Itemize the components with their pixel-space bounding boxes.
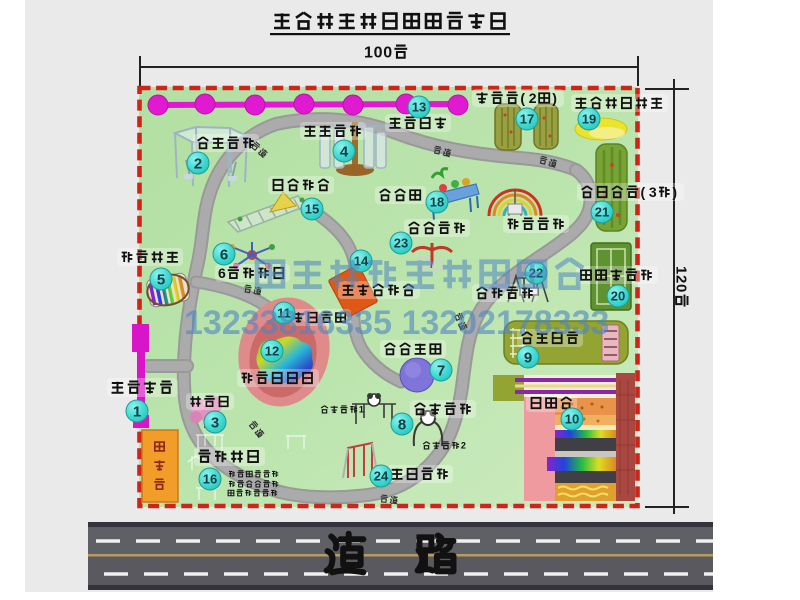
svg-text:7: 7 (437, 362, 445, 379)
svg-text:6: 6 (218, 265, 226, 281)
svg-text:): ) (552, 90, 557, 106)
svg-text:24: 24 (374, 469, 389, 484)
svg-text:(: ( (641, 184, 646, 200)
svg-text:3: 3 (211, 414, 219, 431)
svg-text:1: 1 (133, 403, 141, 420)
svg-text:13: 13 (412, 100, 426, 115)
svg-text:1: 1 (364, 44, 373, 61)
svg-text:2: 2 (194, 155, 202, 172)
svg-text:6: 6 (220, 246, 228, 263)
svg-text:8: 8 (398, 416, 406, 433)
svg-text:(: ( (520, 90, 525, 106)
svg-text:2: 2 (461, 441, 466, 451)
svg-text:3: 3 (649, 184, 657, 200)
svg-text:5: 5 (157, 271, 165, 288)
svg-text:17: 17 (520, 112, 534, 127)
svg-text:19: 19 (582, 112, 596, 127)
svg-text:0: 0 (383, 44, 392, 61)
svg-text:16: 16 (203, 472, 217, 487)
svg-text:15: 15 (305, 202, 319, 217)
svg-text:1: 1 (672, 266, 689, 274)
svg-text:4: 4 (340, 143, 349, 160)
svg-text:2: 2 (672, 275, 689, 283)
svg-text:13233816335 13202178333: 13233816335 13202178333 (184, 304, 609, 342)
svg-text:20: 20 (611, 289, 625, 304)
svg-text:10: 10 (565, 412, 579, 427)
svg-text:18: 18 (430, 195, 444, 210)
svg-text:9: 9 (524, 349, 532, 366)
svg-text:2: 2 (529, 90, 537, 106)
svg-text:23: 23 (394, 236, 408, 251)
svg-text:): ) (672, 184, 677, 200)
svg-text:1: 1 (359, 405, 364, 415)
svg-text:12: 12 (265, 344, 279, 359)
svg-text:0: 0 (672, 284, 689, 292)
svg-text:0: 0 (374, 44, 383, 61)
svg-text:21: 21 (595, 205, 609, 220)
